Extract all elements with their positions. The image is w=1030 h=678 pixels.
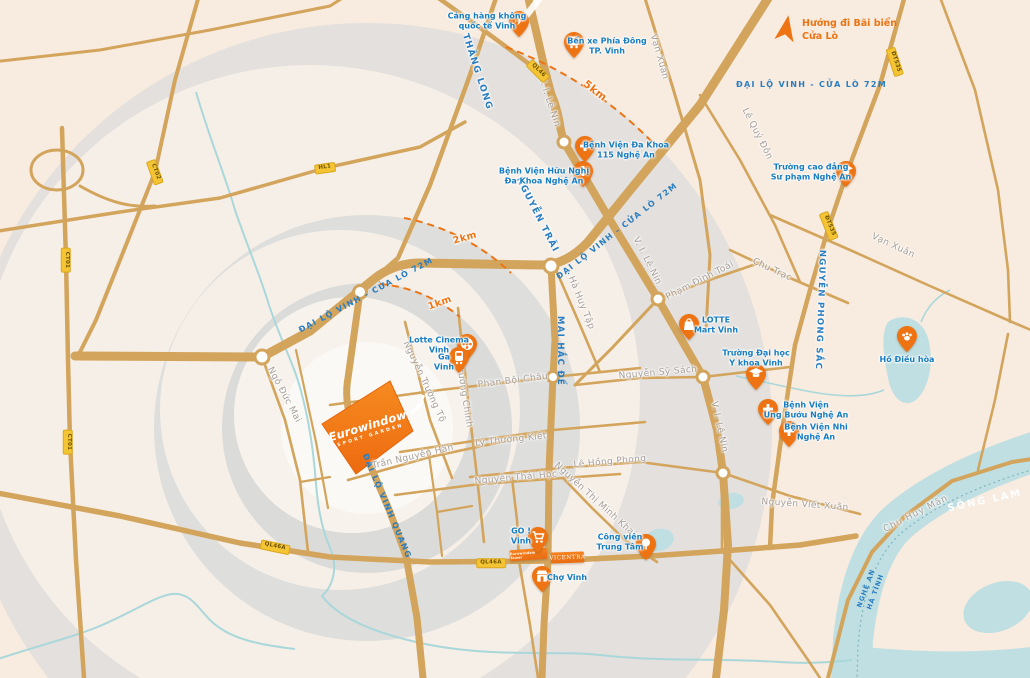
poi-label-bus-station: Bến xe Phía Đông TP. Vinh [567, 37, 646, 58]
landmark-box-vicentra[interactable]: VICENTRA [551, 551, 584, 563]
poi-label-university-y-khoa: Trường Đại học Y khoa Vinh [722, 349, 789, 370]
road-label-dai-lo-vinh-cua-lo-top: ĐẠI LỘ VINH - CỬA LÒ 72M [736, 80, 887, 89]
poi-label-hospital-huu-nghi: Bệnh Viện Hữu Nghị Đa Khoa Nghệ An [499, 167, 589, 188]
route-badge-ct01-south: CT01 [63, 430, 73, 455]
poi-label-ho-dieu-hoa: Hồ Điều hòa [880, 355, 935, 365]
route-badge-ql46a-mid: QL46A [476, 558, 506, 568]
poi-label-hospital-nhi: Bệnh Viện Nhi Nghệ An [784, 423, 848, 444]
poi-label-lotte-mart: LOTTE Mart Vinh [694, 316, 738, 337]
poi-pin-ho-dieu-hoa[interactable] [897, 326, 917, 352]
poi-label-ga-vinh: Ga Vinh [434, 353, 454, 374]
route-badge-ct01-north: CT01 [61, 248, 71, 273]
poi-label-airport: Cảng hàng không quốc tế Vinh [448, 12, 527, 33]
poi-label-hospital-115: Bệnh Viện Đa Khoa 115 Nghệ An [583, 141, 669, 162]
map-canvas[interactable]: 1km 2km 5km THĂNG LONG ĐẠI LỘ VINH - CỬA… [0, 0, 1030, 678]
market-icon [537, 571, 548, 582]
distance-rings-shading [0, 23, 772, 678]
poi-label-go-vinh: GO ! Vinh [511, 527, 531, 548]
poi-label-cho-vinh: Chợ Vinh [547, 573, 587, 583]
road-label-mai-hac-de: MAI HẮC ĐẾ [555, 316, 565, 386]
poi-label-hospital-ung-buou: Bệnh Viện Ung Bướu Nghệ An [764, 401, 849, 422]
direction-arrow-icon [772, 13, 800, 45]
poi-label-college-su-pham: Trường cao đẳng Sư phạm Nghệ An [771, 163, 851, 184]
direction-note: Hướng đi Bãi biển Cửa Lò [802, 18, 897, 44]
poi-label-cong-vien: Công viên Trung Tâm [597, 533, 644, 554]
